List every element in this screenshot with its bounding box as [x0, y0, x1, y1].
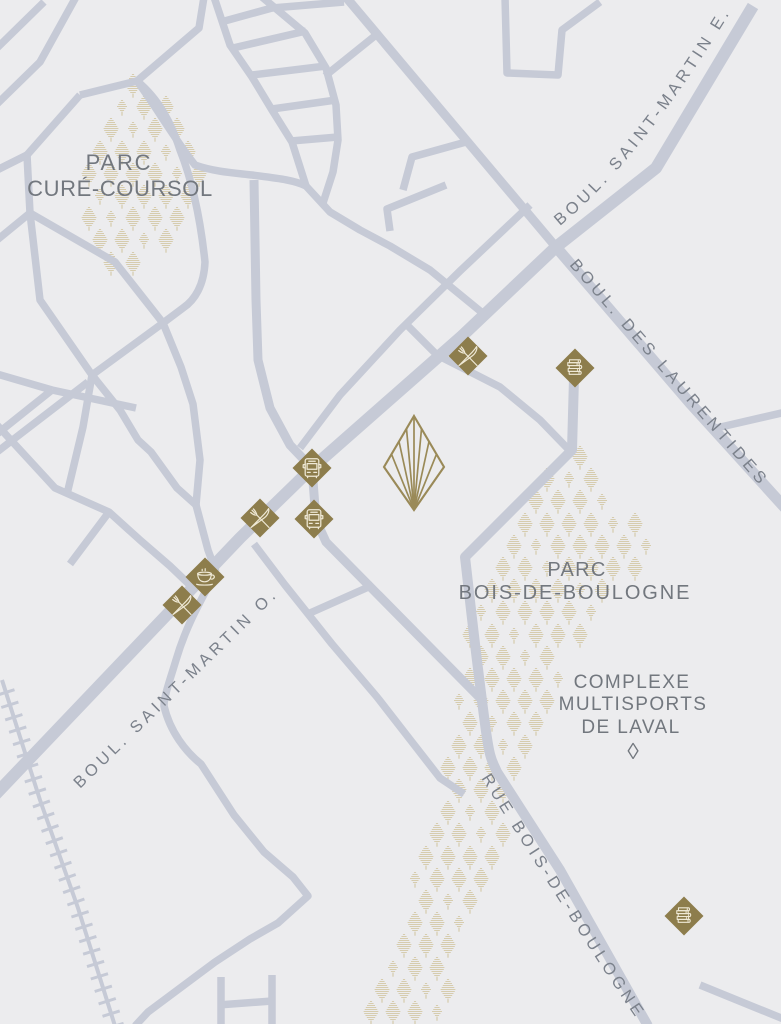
svg-text:CURÉ-COURSOL: CURÉ-COURSOL [27, 176, 213, 201]
svg-text:◊: ◊ [627, 738, 639, 764]
svg-text:COMPLEXE: COMPLEXE [574, 672, 691, 693]
svg-text:MULTISPORTS: MULTISPORTS [559, 694, 708, 715]
svg-text:DE LAVAL: DE LAVAL [581, 717, 680, 738]
svg-text:PARC: PARC [547, 559, 606, 581]
svg-text:BOIS-DE-BOULOGNE: BOIS-DE-BOULOGNE [459, 582, 692, 604]
svg-text:PARC: PARC [86, 150, 153, 175]
